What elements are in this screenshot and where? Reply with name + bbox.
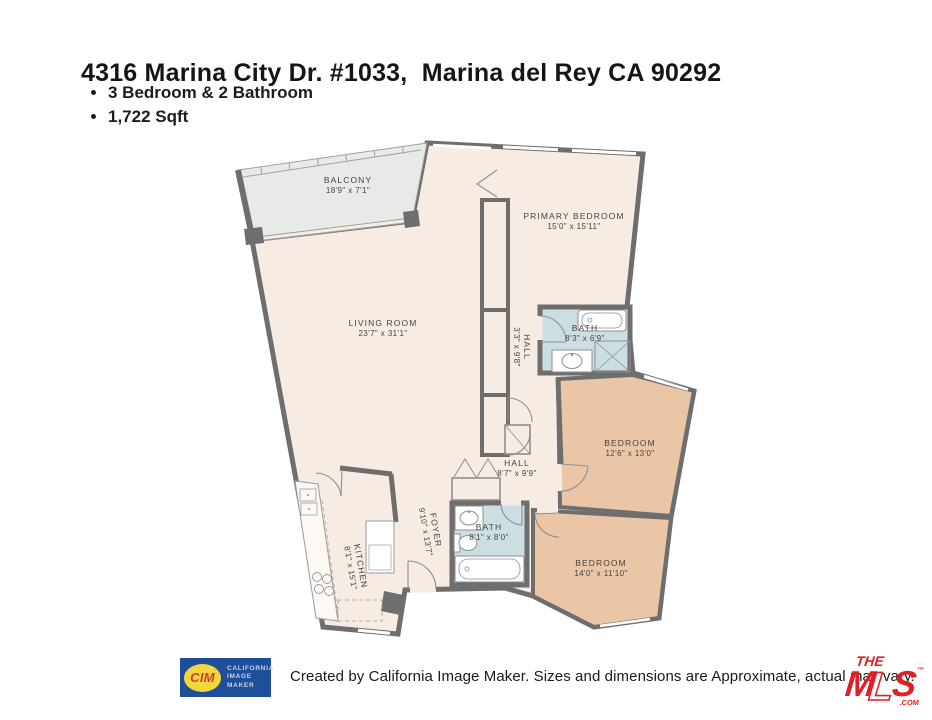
bedroom-upper-floor xyxy=(558,375,694,516)
cim-logo-text: CALIFORNIA IMAGE MAKER xyxy=(227,665,274,690)
bedroom-lower-floor xyxy=(533,510,671,627)
california-image-maker-logo: CIM CALIFORNIA IMAGE MAKER xyxy=(180,658,271,697)
the-mls-logo: THE M S L ™ .COM xyxy=(845,650,927,708)
svg-text:.COM: .COM xyxy=(899,698,920,707)
svg-text:™: ™ xyxy=(916,667,924,674)
sink-vanity-icon xyxy=(455,506,483,530)
svg-text:L: L xyxy=(867,665,896,708)
floorplan: BALCONY 18'9" x 7'1" PRIMARY BEDROOM 15'… xyxy=(0,0,932,720)
cim-badge-icon: CIM xyxy=(184,664,221,692)
disclaimer-text: Created by California Image Maker. Sizes… xyxy=(290,668,915,685)
wall-block xyxy=(403,210,420,228)
closet-column xyxy=(482,200,508,455)
floorplan-drawing xyxy=(0,0,932,720)
wall-block xyxy=(244,227,264,245)
wall-block xyxy=(381,591,403,615)
kitchen-island xyxy=(366,521,394,573)
